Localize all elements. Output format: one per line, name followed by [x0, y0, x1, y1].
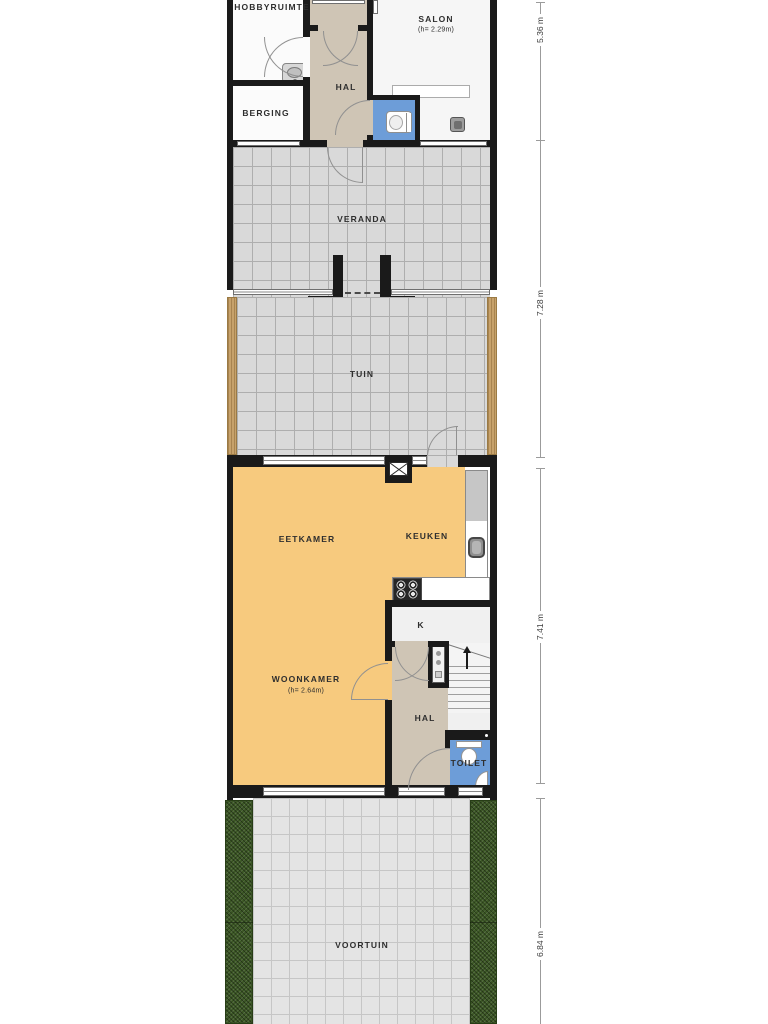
door-opening: [303, 37, 310, 77]
wall: [227, 80, 310, 86]
room-label-eetkamer: EETKAMER: [279, 534, 336, 544]
room-label-hal: HAL: [415, 713, 436, 723]
wall: [490, 0, 497, 147]
flue-icon: [389, 462, 408, 476]
wall: [490, 147, 497, 290]
room-label-veranda: VERANDA: [337, 214, 387, 224]
hedge-seam: [225, 922, 253, 923]
room-note-salon: (h= 2.29m): [418, 27, 454, 34]
door-leaf: [351, 699, 388, 700]
hedge: [225, 800, 253, 1024]
dimension-tick: [536, 468, 545, 469]
arrow-up-icon: [463, 646, 471, 653]
door-leaf: [456, 426, 457, 457]
room-label-salon: SALON: [418, 14, 453, 24]
room-label-voortuin: VOORTUIN: [335, 940, 389, 950]
wall: [367, 95, 420, 100]
window: [263, 787, 385, 796]
room-kast: [392, 607, 490, 643]
room-voortuin: [253, 798, 470, 1024]
sink-icon: [450, 117, 465, 132]
hedge: [470, 800, 497, 1024]
dimension-tick: [536, 798, 545, 799]
stove-icon: [393, 578, 422, 602]
room-label-woonkamer: WOONKAMER: [272, 674, 340, 684]
window: [263, 456, 385, 465]
wall: [227, 147, 233, 290]
dimension-label: 5.36 m: [534, 14, 546, 46]
garden-edge: [487, 297, 497, 455]
room-eetkamer-woonkamer: [233, 467, 385, 790]
window: [412, 456, 427, 465]
wall: [490, 455, 497, 800]
toilet-icon: [456, 741, 482, 748]
toilet-icon: [386, 111, 412, 133]
window: [420, 141, 487, 146]
room-note-woonkamer: (h= 2.64m): [288, 688, 324, 695]
wall: [227, 0, 233, 147]
dimension-label: 7.28 m: [534, 287, 546, 319]
room-label-hal-boven: HAL: [336, 82, 357, 92]
vent-icon: [482, 731, 491, 739]
window: [237, 141, 300, 146]
door-opening: [327, 140, 363, 147]
wall: [385, 600, 497, 607]
wall: [415, 95, 420, 140]
room-label-tuin: TUIN: [350, 369, 374, 379]
wall: [227, 455, 233, 800]
front-door: [458, 787, 483, 796]
garden-edge: [227, 297, 237, 455]
dimension-label: 6.84 m: [534, 928, 546, 960]
room-label-toilet: TOILET: [451, 758, 488, 768]
sink-icon: [468, 537, 485, 558]
room-label-keuken: KEUKEN: [406, 531, 449, 541]
room-label-berging: BERGING: [242, 108, 289, 118]
hall-landing: [448, 713, 490, 730]
hedge-seam: [470, 922, 497, 923]
room-label-hobbyruimte: HOBBYRUIMTE: [234, 2, 309, 12]
door-opening: [427, 455, 458, 467]
dimension-tick: [536, 457, 545, 458]
dimension-tick: [536, 2, 545, 3]
staircase: [448, 660, 490, 713]
opening-dashed-line: [345, 292, 380, 294]
boiler-icon: [432, 646, 445, 683]
window: [391, 289, 490, 295]
dimension-line: [540, 798, 541, 1024]
arrow-up-icon: [466, 652, 468, 669]
dimension-label: 7.41 m: [534, 611, 546, 643]
window: [312, 0, 365, 4]
room-label-kast: K: [417, 620, 424, 630]
door-leaf: [362, 147, 363, 183]
window: [233, 289, 333, 295]
floor-plan: HOBBYRUIMTE SALON (h= 2.29m) HAL BERGING…: [0, 0, 768, 1024]
window: [373, 0, 378, 14]
dimension-tick: [536, 783, 545, 784]
